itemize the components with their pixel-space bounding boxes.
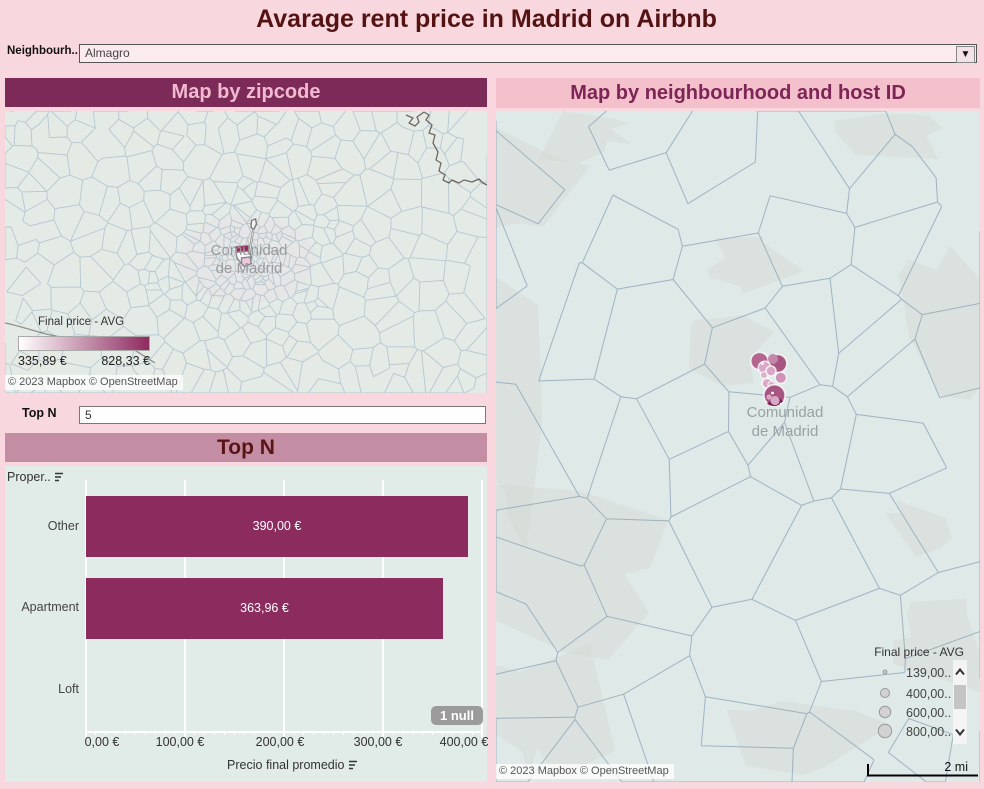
- svg-text:400,00..: 400,00..: [906, 687, 951, 701]
- svg-text:139,00..: 139,00..: [906, 666, 951, 680]
- svg-text:2 mi: 2 mi: [944, 760, 968, 774]
- svg-text:600,00..: 600,00..: [906, 706, 951, 720]
- svg-text:800,00..: 800,00..: [906, 725, 951, 739]
